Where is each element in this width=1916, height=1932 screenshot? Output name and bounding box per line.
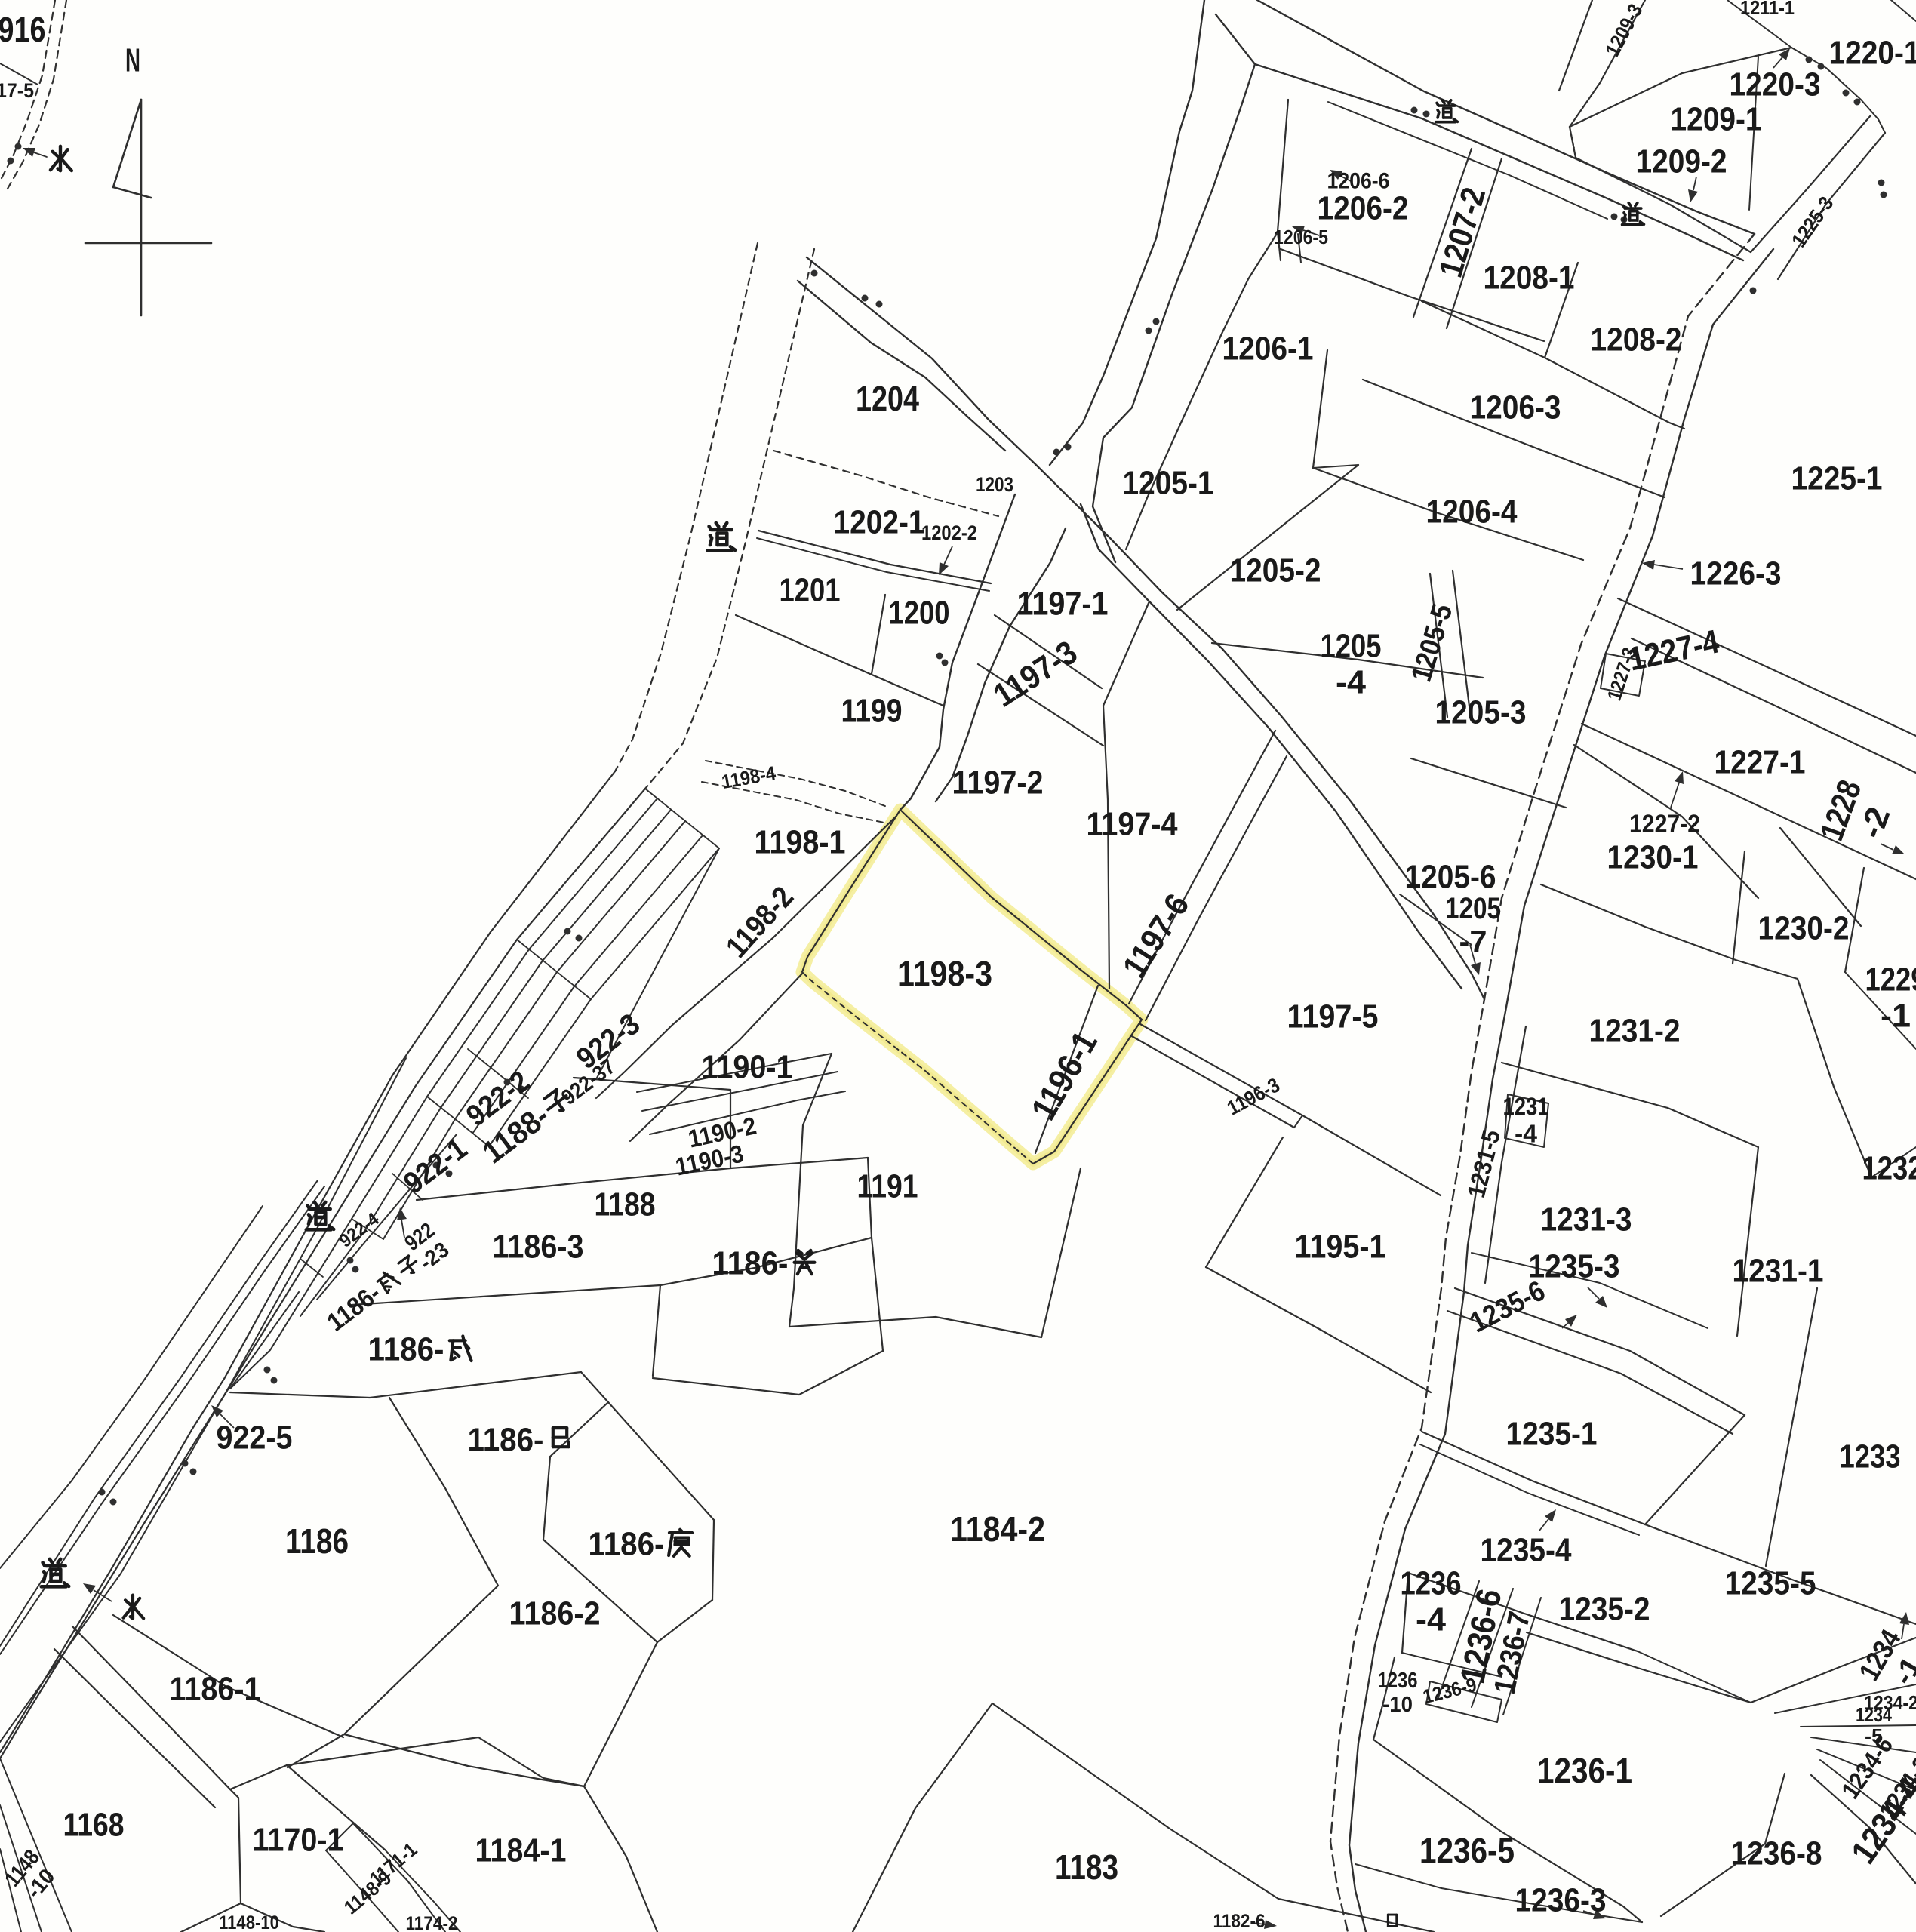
svg-text:1205: 1205 bbox=[1321, 628, 1382, 665]
svg-text:1198-1: 1198-1 bbox=[755, 824, 846, 861]
svg-text:1204: 1204 bbox=[856, 379, 919, 418]
svg-text:1186-: 1186- bbox=[368, 1331, 444, 1368]
svg-text:1236: 1236 bbox=[1378, 1669, 1418, 1693]
svg-text:1232: 1232 bbox=[1862, 1150, 1916, 1187]
svg-text:1231-3: 1231-3 bbox=[1541, 1201, 1632, 1238]
svg-text:1233: 1233 bbox=[1840, 1438, 1901, 1475]
svg-text:1230-1: 1230-1 bbox=[1607, 839, 1699, 876]
svg-text:-10: -10 bbox=[1382, 1693, 1413, 1717]
svg-text:1227-1: 1227-1 bbox=[1715, 744, 1806, 781]
svg-text:1188: 1188 bbox=[595, 1186, 656, 1223]
svg-text:1206-3: 1206-3 bbox=[1470, 389, 1561, 426]
svg-text:1235-3: 1235-3 bbox=[1529, 1248, 1620, 1285]
svg-text:1234: 1234 bbox=[1856, 1703, 1892, 1726]
svg-text:1227-2: 1227-2 bbox=[1629, 810, 1700, 838]
svg-text:1174-2: 1174-2 bbox=[406, 1913, 458, 1932]
svg-text:1182-6: 1182-6 bbox=[1213, 1911, 1266, 1932]
svg-text:17-5: 17-5 bbox=[0, 79, 34, 102]
svg-text:1205-6: 1205-6 bbox=[1405, 859, 1496, 896]
svg-text:1206-1: 1206-1 bbox=[1222, 331, 1314, 368]
svg-text:1226-3: 1226-3 bbox=[1690, 555, 1782, 592]
svg-text:1202-2: 1202-2 bbox=[921, 521, 977, 544]
svg-text:1197-2: 1197-2 bbox=[952, 764, 1044, 801]
svg-text:1195-1: 1195-1 bbox=[1295, 1229, 1386, 1266]
svg-text:-4: -4 bbox=[1515, 1120, 1538, 1148]
svg-text:1184-1: 1184-1 bbox=[475, 1832, 567, 1869]
svg-text:-4: -4 bbox=[1336, 664, 1367, 701]
svg-text:1184-2: 1184-2 bbox=[950, 1509, 1045, 1549]
svg-text:1208-2: 1208-2 bbox=[1591, 321, 1682, 358]
svg-text:1200: 1200 bbox=[889, 595, 950, 632]
svg-text:1235-1: 1235-1 bbox=[1506, 1416, 1598, 1453]
svg-text:1236-5: 1236-5 bbox=[1419, 1831, 1515, 1870]
svg-text:1235-2: 1235-2 bbox=[1559, 1591, 1650, 1628]
svg-text:1203: 1203 bbox=[976, 473, 1013, 496]
svg-text:1229: 1229 bbox=[1865, 961, 1916, 998]
svg-text:-1: -1 bbox=[1881, 998, 1911, 1035]
svg-text:1186-: 1186- bbox=[468, 1422, 544, 1459]
svg-text:1211-1: 1211-1 bbox=[1740, 0, 1795, 19]
svg-text:1148-10: 1148-10 bbox=[219, 1912, 279, 1932]
svg-text:1186-: 1186- bbox=[589, 1526, 665, 1563]
svg-text:1197-1: 1197-1 bbox=[1017, 586, 1109, 623]
svg-text:-7: -7 bbox=[1459, 925, 1487, 958]
svg-text:1197-5: 1197-5 bbox=[1287, 998, 1379, 1035]
svg-text:1206-2: 1206-2 bbox=[1318, 190, 1409, 227]
svg-text:916: 916 bbox=[0, 10, 46, 49]
svg-text:922-5: 922-5 bbox=[217, 1420, 293, 1457]
svg-text:1231: 1231 bbox=[1503, 1093, 1549, 1121]
svg-text:1220-1: 1220-1 bbox=[1829, 35, 1916, 72]
svg-text:1186-1: 1186-1 bbox=[170, 1671, 261, 1708]
svg-text:1236-1: 1236-1 bbox=[1537, 1751, 1632, 1790]
svg-text:1197-4: 1197-4 bbox=[1087, 806, 1178, 843]
svg-text:1225-1: 1225-1 bbox=[1791, 460, 1883, 497]
svg-text:1236: 1236 bbox=[1401, 1565, 1462, 1602]
svg-text:1186: 1186 bbox=[285, 1521, 349, 1561]
svg-text:1236-8: 1236-8 bbox=[1731, 1835, 1822, 1872]
svg-text:1235-5: 1235-5 bbox=[1725, 1565, 1816, 1602]
svg-text:1191: 1191 bbox=[857, 1168, 918, 1205]
svg-text:1168: 1168 bbox=[63, 1807, 125, 1844]
svg-text:1183: 1183 bbox=[1055, 1847, 1118, 1887]
svg-text:1199: 1199 bbox=[841, 693, 903, 730]
svg-text:1209-2: 1209-2 bbox=[1636, 143, 1727, 180]
svg-text:1190-1: 1190-1 bbox=[702, 1049, 793, 1086]
svg-text:1205-1: 1205-1 bbox=[1123, 465, 1214, 502]
svg-text:1186-2: 1186-2 bbox=[509, 1595, 601, 1632]
svg-text:1170-1: 1170-1 bbox=[253, 1822, 344, 1859]
svg-text:1206-4: 1206-4 bbox=[1426, 494, 1518, 531]
svg-text:-4: -4 bbox=[1416, 1601, 1447, 1638]
svg-text:1209-1: 1209-1 bbox=[1671, 101, 1762, 138]
svg-text:1201: 1201 bbox=[780, 572, 841, 609]
svg-text:1231-2: 1231-2 bbox=[1589, 1013, 1681, 1050]
svg-text:1230-2: 1230-2 bbox=[1758, 910, 1850, 947]
svg-text:1205-2: 1205-2 bbox=[1230, 552, 1321, 589]
svg-text:1231-1: 1231-1 bbox=[1733, 1253, 1824, 1290]
svg-text:N: N bbox=[125, 42, 140, 79]
svg-text:1235-4: 1235-4 bbox=[1481, 1532, 1572, 1569]
svg-text:1205: 1205 bbox=[1445, 892, 1501, 925]
svg-text:1208-1: 1208-1 bbox=[1484, 260, 1575, 297]
svg-text:1205-3: 1205-3 bbox=[1435, 694, 1527, 731]
svg-text:1220-3: 1220-3 bbox=[1730, 66, 1821, 103]
svg-text:1236-3: 1236-3 bbox=[1515, 1882, 1607, 1919]
svg-text:1202-1: 1202-1 bbox=[834, 504, 925, 541]
svg-text:1198-3: 1198-3 bbox=[897, 954, 992, 993]
svg-text:1186-3: 1186-3 bbox=[493, 1229, 584, 1266]
svg-text:1186-: 1186- bbox=[712, 1245, 789, 1282]
svg-text:1206-5: 1206-5 bbox=[1274, 226, 1328, 248]
